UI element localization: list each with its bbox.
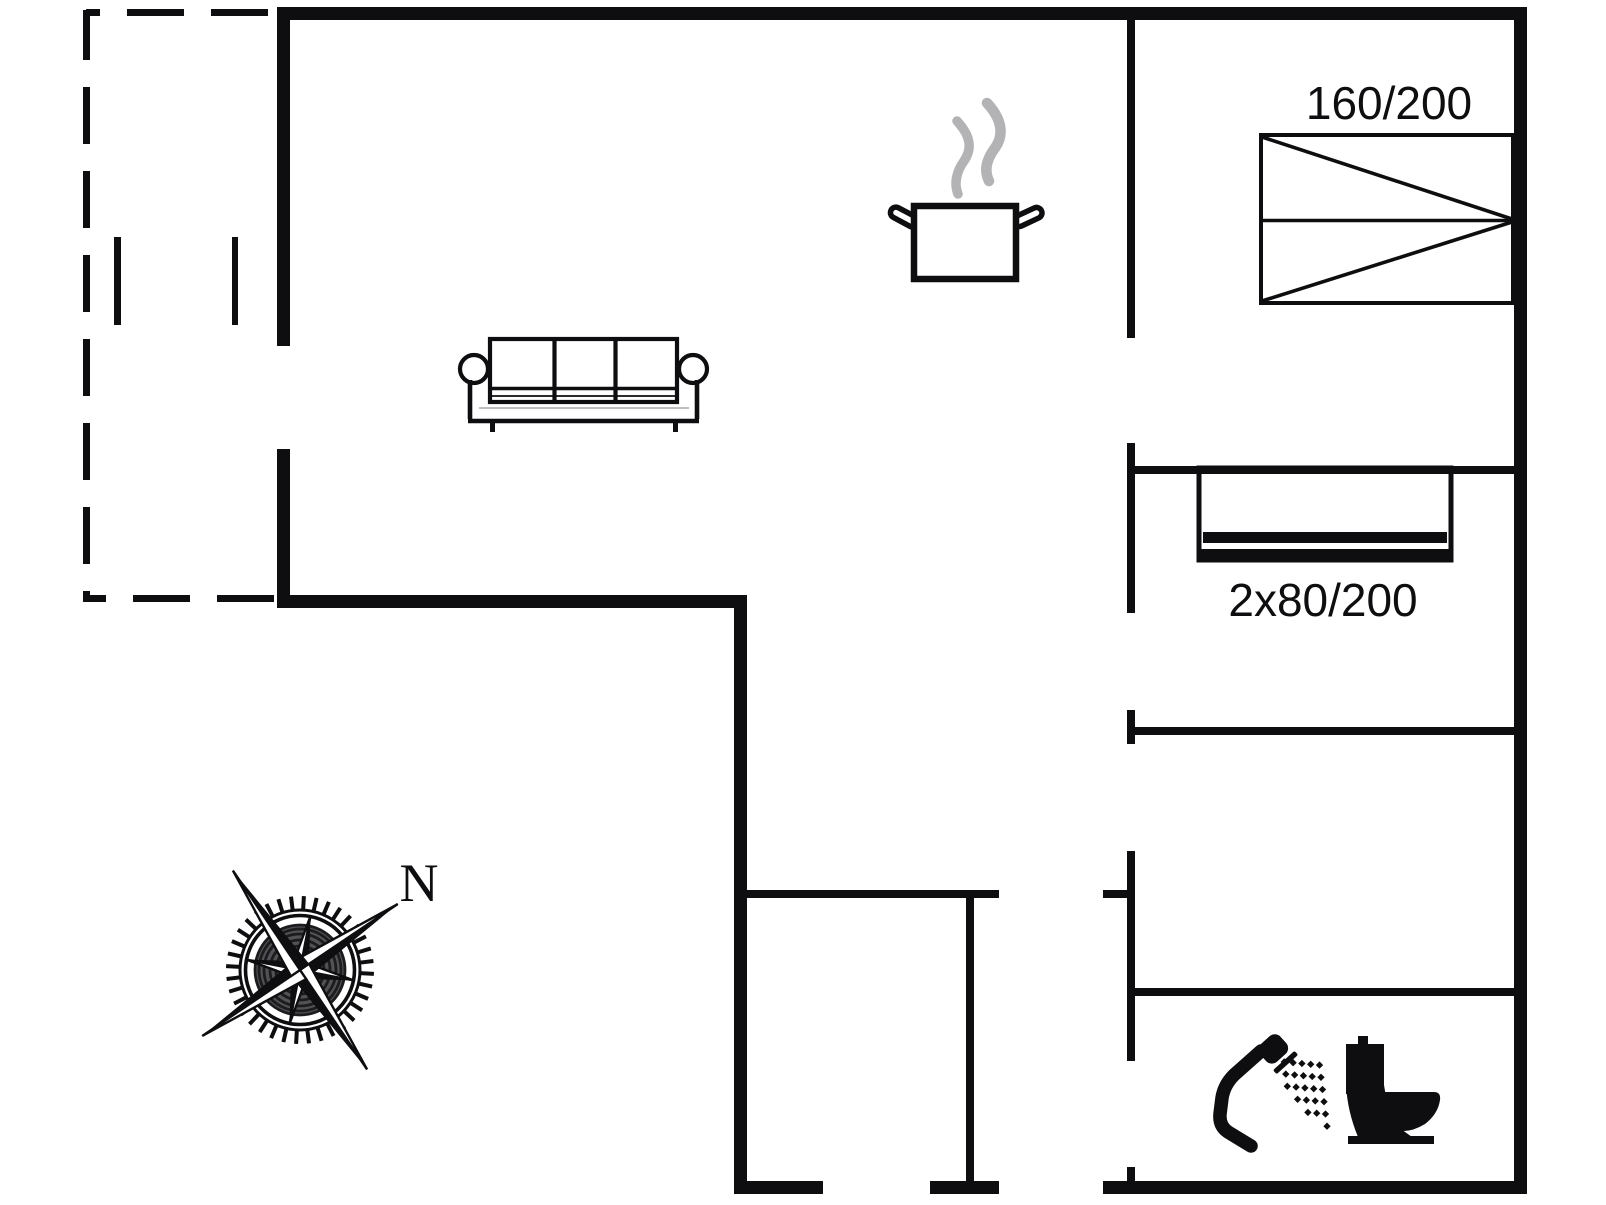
- svg-text:160/200: 160/200: [1306, 77, 1472, 129]
- svg-text:N: N: [400, 853, 439, 913]
- svg-text:2x80/200: 2x80/200: [1228, 574, 1417, 626]
